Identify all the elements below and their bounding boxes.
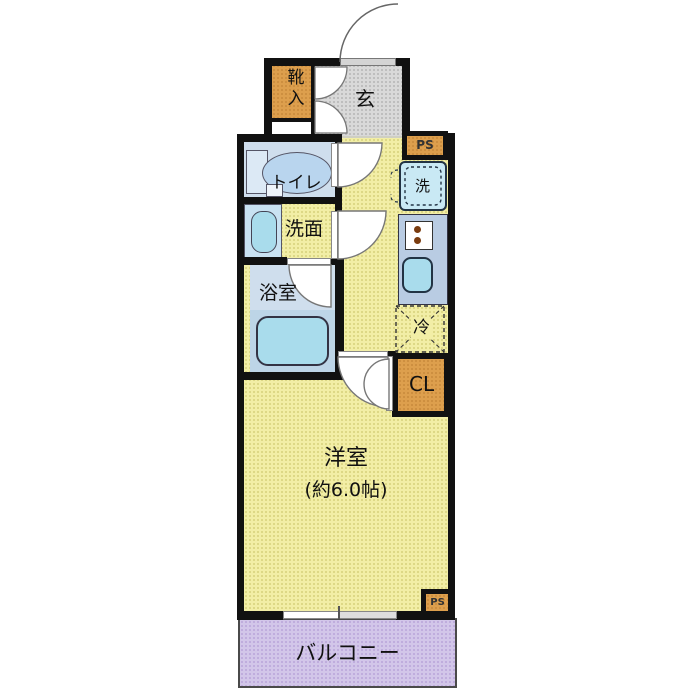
closet-label: CL — [409, 373, 434, 396]
door-arc-layer — [0, 0, 700, 700]
washroom-door-arc — [338, 211, 386, 259]
washer-hookup-dashes — [391, 170, 398, 202]
floor-plan: 玄 靴入 トイレ 洗面 浴室 洗 冷 CL PS PS 洋室 (約6.0帖) バ… — [0, 0, 700, 700]
pipe-space-bottom-label: PS — [426, 597, 449, 609]
fridge-label: 冷 — [411, 319, 432, 339]
toilet-door-arc — [338, 143, 382, 187]
entrance-door-arc — [340, 4, 398, 62]
balcony-label: バルコニー — [238, 641, 457, 665]
washer-label: 洗 — [415, 178, 430, 195]
main-room-label: 洋室 — [244, 446, 448, 471]
toilet-label: トイレ — [256, 174, 336, 194]
washroom-label: 洗面 — [285, 219, 323, 241]
pipe-space-top-label: PS — [407, 139, 443, 153]
shoe-cabinet-label: 靴入 — [283, 68, 303, 110]
shoe-cabinet-door-upper-arc — [315, 67, 347, 99]
main-room-size-label: (約6.0帖) — [244, 480, 448, 502]
shoe-cabinet-door-lower-arc — [315, 101, 347, 133]
entrance-label: 玄 — [355, 88, 375, 111]
bathroom-label: 浴室 — [259, 283, 297, 305]
